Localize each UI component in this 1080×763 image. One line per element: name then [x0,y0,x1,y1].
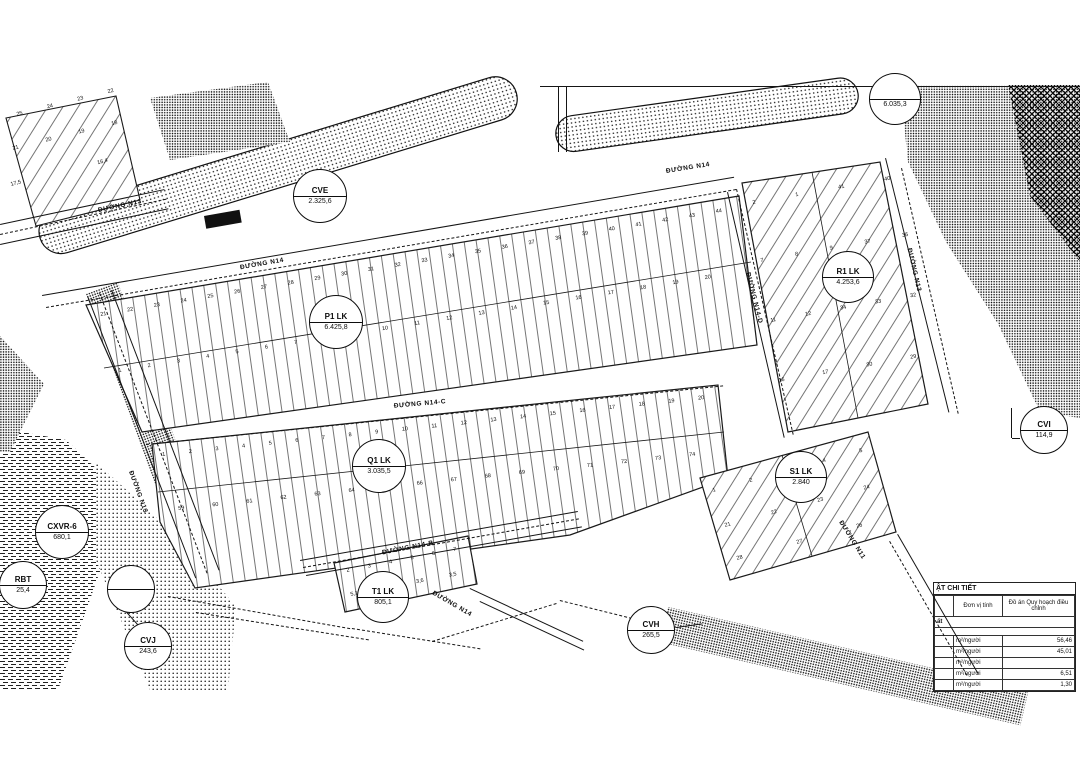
balloon-r1-lk: R1 LK4.253,6 [822,251,874,303]
lot-number: 35 [475,248,482,255]
lot-number: 33 [875,298,882,305]
legend-grid: Đơn vị tính Đồ án Quy hoạch điều chỉnh ấ… [934,595,1075,691]
lot-number: 64 [348,487,355,494]
lot-number: 26 [234,289,241,296]
lot-number: 69 [519,470,526,477]
lot-number: 41 [838,184,845,191]
legend-value: 45,01 [1003,647,1075,658]
green-strip-top [553,76,860,154]
lot-number: 3 [215,446,219,452]
lot-number: 1 [118,368,122,374]
balloon-cvh: CVH265,5 [627,606,675,654]
culvert-mark [204,210,242,229]
lot-number: 32 [394,262,401,269]
lot-number: 2 [189,449,193,455]
lot-number: 29 [910,354,917,361]
lot-number: 30 [866,361,873,368]
lot-number: 40 [884,176,891,183]
lot-number: 17 [822,369,829,376]
legend-title: ẬT CHI TIẾT [934,583,1075,595]
lot-number: 20 [698,395,705,402]
plan-canvas: ẬT CHI TIẾT Đơn vị tính Đồ án Quy hoạch … [0,0,1080,763]
lot-number: 25 [207,293,214,300]
lot-number: 37 [528,239,535,246]
legend-value: 56,46 [1003,636,1075,647]
legend-unit: m²/người [954,647,1003,658]
lot-number: 1 [162,452,166,458]
balloon-cvi: CVI114,9 [1020,406,1068,454]
lot-number: 1 [795,192,799,198]
lot-number: 28 [287,280,294,287]
lot-number: 63 [314,491,321,498]
lot-number: 12 [446,315,453,322]
lot-number: 38 [555,235,562,242]
balloon-cvj: CVJ243,6 [124,622,172,670]
lot-number: 23 [154,302,161,309]
lot-number: 2 [346,567,350,573]
lot-number: 11 [431,423,437,430]
lot-number: 9 [375,429,379,435]
road-edge-line [558,86,559,152]
lot-number: 4 [389,559,393,565]
road-edge-line [566,86,567,152]
lot-number: 4 [206,354,210,360]
lot-number: 40 [608,226,615,233]
lot-number: 74 [689,452,696,459]
lot-number: 2 [749,477,754,484]
road-edge-line [1012,438,1020,439]
lot-number: 2 [147,363,151,369]
lot-number: 16 [579,408,586,415]
lot-number: 3 [367,563,371,569]
lot-number: 32 [910,292,917,299]
lot-number: 1 [712,487,717,494]
lot-number: 70 [553,466,560,473]
lot-number: 30 [341,271,348,278]
lot-number: 18 [640,284,647,291]
legend-value: 1,30 [1003,680,1075,691]
legend-data-row: m²/người 6,51 [935,669,1075,680]
lot-number: 21 [100,311,107,318]
lot-number: 4 [242,443,246,449]
lot-number: 5 [410,555,414,561]
lot-number: 13 [490,417,497,424]
balloon-s1-lk: S1 LK2.840 [775,451,827,503]
lot-number: 16 [575,295,582,302]
lot-number: 33 [421,257,428,264]
lot-number: 36 [902,232,909,239]
lot-number: 9 [829,245,833,251]
lot-number: 34 [448,253,455,260]
legend-table: ẬT CHI TIẾT Đơn vị tính Đồ án Quy hoạch … [933,582,1076,692]
legend-header-value: Đồ án Quy hoạch điều chỉnh [1003,596,1075,617]
balloon-unlabeled [107,565,155,613]
lot-number: 5 [268,440,272,446]
lot-number: 41 [635,221,642,228]
lot-number: 8 [795,251,799,257]
legend-value [1003,658,1075,669]
balloon-q1-lk: Q1 LK3.035,5 [352,439,406,493]
lot-number: 6 [295,438,299,444]
lot-number: 67 [450,477,457,484]
lot-number: 12 [805,311,812,318]
lot-number: 34 [840,305,847,312]
lot-number: 6 [264,344,268,350]
lot-number: 59 [178,505,185,512]
lot-number: 15 [543,300,550,307]
lot-number: 31 [368,266,375,273]
lot-number: 12 [460,420,467,427]
legend-data-row: m²/người [935,658,1075,669]
lot-number: 66 [416,480,423,487]
balloon-p1-lk: P1 LK6.425,8 [309,295,363,349]
lot-number: 15 [549,411,556,418]
lot-number: 8 [348,432,352,438]
lot-number: 61 [246,498,253,505]
balloon-cxvr-6: CXVR-6680,1 [35,505,89,559]
lot-number: 39 [582,230,589,237]
lot-number: 42 [662,217,669,224]
lot-number: 22 [127,307,134,314]
lot-number: 37 [864,239,871,246]
lot-number: 13 [478,310,485,317]
lot-number: 17 [607,290,614,297]
lot-number: 29 [314,275,321,282]
road-edge-line [1011,408,1012,438]
lot-number: 71 [587,462,594,469]
legend-header-unit: Đơn vị tính [954,596,1003,617]
lot-number: 2 [752,199,756,205]
lot-number: 36 [501,244,508,251]
lot-number: 72 [621,459,628,466]
lot-number: 7 [760,257,764,263]
lot-number: 10 [382,325,389,332]
lot-number: 17 [609,404,616,411]
legend-section-row: ất [935,617,1075,628]
lot-number: 7 [322,435,326,441]
hatch-rbt-area [0,428,104,690]
lot-number: 6 [432,551,436,557]
lot-number: 3 [177,358,181,364]
balloon-rbt: RBT25,4 [0,561,47,609]
lot-number: 24 [180,298,187,305]
lot-number: 60 [212,502,219,509]
lot-number: 16 [778,377,785,384]
lot-number: 7 [294,340,298,346]
lot-number: 20 [704,274,711,281]
lot-number: 73 [655,455,662,462]
road-edge-line [540,86,1080,87]
lot-number: 18 [638,401,645,408]
lot-number: 44 [715,208,722,215]
lot-number: 11 [414,320,421,327]
lot-number: 14 [520,414,527,421]
legend-value: 6,51 [1003,669,1075,680]
balloon-cve: CVE2.325,6 [293,169,347,223]
legend-section-label: ất [935,617,1075,628]
legend-header-row: Đơn vị tính Đồ án Quy hoạch điều chỉnh [935,596,1075,617]
lot-number: 27 [261,284,268,291]
lot-number: 43 [689,212,696,219]
lot-number: 10 [402,426,409,433]
lot-number: 14 [510,305,517,312]
lot-number: 19 [668,398,675,405]
balloon-value-6-035-3: 6.035,3 [869,73,921,125]
lot-number: 68 [485,473,492,480]
legend-data-row: m²/người 1,30 [935,680,1075,691]
lot-number: 5 [235,349,239,355]
balloon-t1-lk: T1 LK805,1 [357,571,409,623]
lot-number: 11 [770,317,777,324]
lot-number: 19 [672,279,679,286]
lot-number: 62 [280,495,287,502]
legend-unit: m²/người [954,680,1003,691]
